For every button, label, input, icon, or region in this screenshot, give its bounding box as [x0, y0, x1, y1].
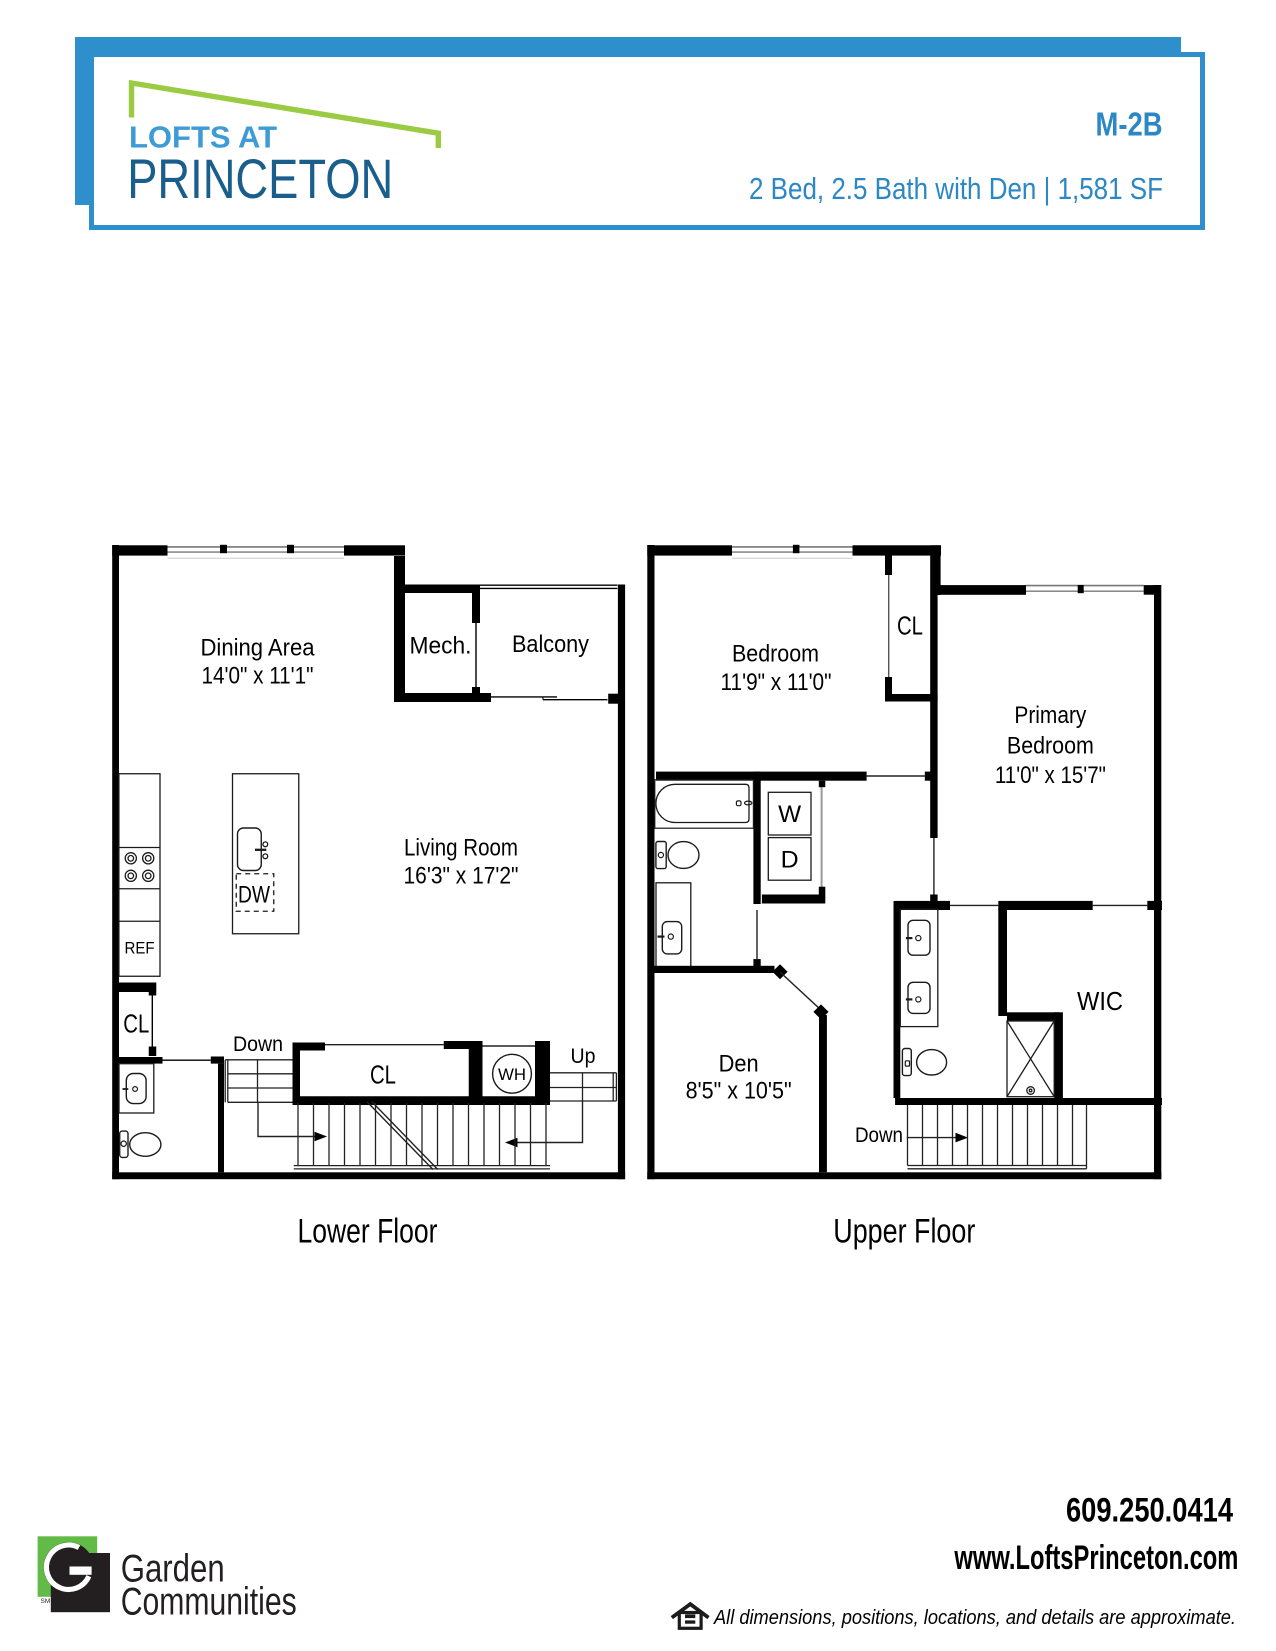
svg-text:CL: CL [370, 1060, 396, 1090]
svg-text:Dining Area: Dining Area [201, 634, 316, 661]
svg-text:8'5" x 10'5": 8'5" x 10'5" [686, 1078, 792, 1105]
svg-text:Balcony: Balcony [512, 631, 589, 658]
svg-text:REF: REF [125, 939, 155, 958]
svg-text:Down: Down [855, 1124, 903, 1147]
svg-text:CL: CL [897, 611, 923, 641]
svg-text:W: W [778, 801, 801, 828]
svg-text:WIC: WIC [1077, 986, 1123, 1016]
svg-text:DW: DW [238, 882, 270, 909]
svg-text:Upper Floor: Upper Floor [833, 1213, 975, 1251]
svg-text:Den: Den [719, 1051, 759, 1078]
svg-text:Down: Down [233, 1033, 283, 1056]
svg-text:Living Room: Living Room [404, 834, 518, 861]
svg-text:2 Bed, 2.5 Bath with Den | 1,5: 2 Bed, 2.5 Bath with Den | 1,581 SF [749, 171, 1163, 206]
svg-text:Lower Floor: Lower Floor [298, 1213, 438, 1251]
svg-text:D: D [781, 847, 799, 874]
svg-text:609.250.0414: 609.250.0414 [1066, 1492, 1233, 1530]
svg-text:11'9" x 11'0": 11'9" x 11'0" [721, 669, 832, 696]
svg-text:14'0" x 11'1": 14'0" x 11'1" [202, 663, 314, 690]
svg-text:M-2B: M-2B [1096, 106, 1163, 143]
svg-text:Bedroom: Bedroom [1007, 733, 1094, 760]
svg-text:Up: Up [571, 1045, 596, 1068]
svg-text:16'3" x 17'2": 16'3" x 17'2" [404, 863, 519, 890]
svg-text:www.LoftsPrinceton.com: www.LoftsPrinceton.com [954, 1539, 1239, 1577]
svg-text:Mech.: Mech. [410, 633, 472, 660]
svg-text:SM: SM [41, 1598, 51, 1605]
svg-text:Bedroom: Bedroom [732, 641, 819, 668]
svg-text:CL: CL [123, 1009, 149, 1039]
svg-text:PRINCETON: PRINCETON [127, 147, 393, 210]
svg-text:Primary: Primary [1014, 702, 1086, 729]
svg-text:All dimensions, positions, loc: All dimensions, positions, locations, an… [712, 1606, 1236, 1629]
svg-text:WH: WH [498, 1065, 526, 1084]
svg-text:11'0" x 15'7": 11'0" x 15'7" [995, 762, 1106, 789]
svg-text:Communities: Communities [121, 1581, 297, 1624]
